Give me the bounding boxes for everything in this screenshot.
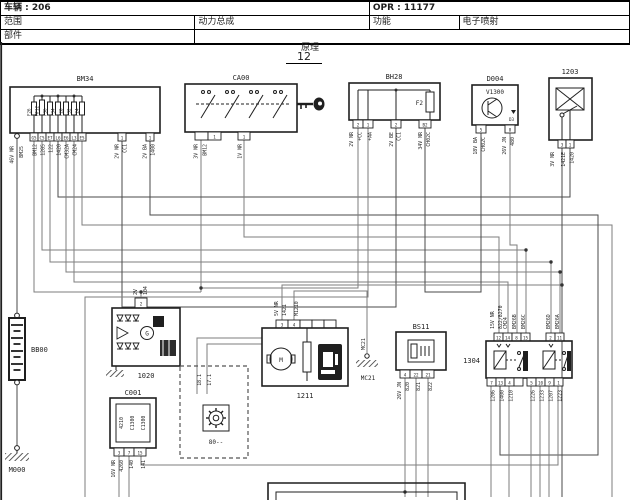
c001-pin: 15 xyxy=(137,451,143,456)
wire-label: BM26C xyxy=(521,314,527,329)
c001-label: C001 xyxy=(125,389,142,397)
wire-label: 1233 xyxy=(540,390,546,402)
wire-label: BM12 xyxy=(33,144,39,156)
wire-label: CH02C xyxy=(481,137,487,152)
r1304-bottom-wire-labels: 1206 1400 1210 1226 1233 1207 1223 xyxy=(491,390,564,402)
wire-label: BM26B xyxy=(512,314,518,329)
wire-label: 1421E xyxy=(561,152,567,167)
component-1304: 1304 15V NR 822/8270 CM24 BM26B BM26C BM… xyxy=(463,305,572,401)
alternator-diodes xyxy=(117,315,139,349)
component-bb00: BB00 xyxy=(9,313,48,385)
b-terminal-icon: B xyxy=(157,320,161,327)
bm34-pin: L6 xyxy=(55,136,61,141)
bm34-battery-terminal xyxy=(15,134,20,139)
diode-icon xyxy=(511,110,516,114)
bm34-fuse-label: F36 xyxy=(43,108,48,116)
wire-label: 1421 xyxy=(282,304,288,316)
bm34-fuse-label: F26 xyxy=(27,108,32,116)
bh28-pin: B2 xyxy=(422,123,428,128)
wire-label: 1400 xyxy=(500,390,506,402)
component-bs11: BS11 4 22 21 26V JN 820 821 822 xyxy=(396,323,446,400)
c001-inner-label: C1300 xyxy=(130,416,136,431)
wire-label: 2V NR xyxy=(349,132,355,147)
key-icon xyxy=(297,98,325,111)
r1304-pin: 10 xyxy=(538,381,544,386)
bm34-label: BM34 xyxy=(77,75,94,83)
r1304-top-pins: 12 14 8 15 2 11 xyxy=(494,333,564,341)
wire-label: 822 xyxy=(428,382,434,391)
wire-label: 2V BA xyxy=(143,144,149,159)
bm34-fuse-label: F24 xyxy=(75,108,80,116)
bh28-label: BH28 xyxy=(386,73,403,81)
bm34-fuse-label: F34 xyxy=(51,108,56,116)
wire-label: +CC xyxy=(358,132,364,141)
wire-label: 1226 xyxy=(531,390,537,402)
wire-label: 34V NR xyxy=(418,132,424,150)
component-1211: 5V NR 1421 M1210 3 4 M 1211 xyxy=(262,301,348,400)
wire-label: 1420 xyxy=(57,144,63,156)
ca00-label: CA00 xyxy=(233,74,250,82)
r1304-pin: 13 xyxy=(498,381,504,386)
wire-label: 1206 xyxy=(491,390,497,402)
bm34-wire-labels: 46V NR BM25 BM12 1285 122 1420 CM32A CM2… xyxy=(10,144,157,164)
wire-label: 3V NR xyxy=(194,144,200,159)
wire-label: BM26A xyxy=(555,314,561,329)
wire-label: 26V JN xyxy=(502,137,508,155)
m000-label: M000 xyxy=(9,466,26,474)
wire-label: 2V xyxy=(133,289,139,295)
wire-label: 3V NR xyxy=(550,152,556,167)
wire-label: 122 xyxy=(49,144,55,153)
r1304-pin: 11 xyxy=(557,336,563,341)
bm34-fuse-label: F32 xyxy=(67,108,72,116)
component-80-box: 18.1 17.1 80-- xyxy=(180,366,248,458)
box80-label: 80-- xyxy=(209,439,223,446)
wiring-diagram: BM34 F26 MF12 F36 F34 F2 xyxy=(0,0,630,500)
r1304-pin: 12 xyxy=(496,336,502,341)
bm34-pin: G5 xyxy=(31,136,37,141)
wire-label: 1285 xyxy=(41,144,47,156)
alternator-ground xyxy=(106,370,124,377)
wire-label: CM32A xyxy=(65,144,71,159)
wire-label: CM24 xyxy=(503,317,509,329)
d004-sub-label: V1300 xyxy=(486,89,504,96)
schematic-page: 车辆 : 206 OPR : 11177 范围 动力总成 功能 电子喷射 部件 … xyxy=(0,0,630,500)
wire-label: 1400 xyxy=(151,144,157,156)
component-c001: C001 4210 C1300 C1300 3 7 15 16V NR 4260… xyxy=(110,389,156,478)
wire-label: 18.1 xyxy=(197,374,203,386)
component-bh28: BH28 F2 2 1 2 B2 2V NR +CC +AA 2V BE CC1… xyxy=(349,73,440,150)
relay-1203-label: 1203 xyxy=(562,68,579,76)
ground-m000: M000 xyxy=(5,446,29,474)
relay-internals xyxy=(494,344,571,371)
wire-label: CC1 xyxy=(397,132,403,141)
wire-label: 46V NR xyxy=(10,146,16,164)
bs11-pin: 22 xyxy=(413,373,419,378)
bottom-partial-box xyxy=(268,483,465,500)
component-bm34: BM34 F26 MF12 F36 F34 F2 xyxy=(10,75,161,164)
wire-label: 4260 xyxy=(119,460,125,472)
wire-label: 1207 xyxy=(549,390,555,402)
wire-label: 480 xyxy=(510,137,516,146)
relay-1304-label: 1304 xyxy=(463,357,480,365)
wire-label: 141 xyxy=(141,460,147,469)
bm34-pin: E6 xyxy=(63,136,69,141)
bm34-fuse-label: MF12 xyxy=(35,105,40,116)
wire-label: 104 xyxy=(143,286,149,295)
component-ca00: CA00 1 1 xyxy=(185,74,325,159)
wire-label: BM26D xyxy=(546,314,552,329)
bm34-fuse-label: F28 xyxy=(59,108,64,116)
wire-label: 1210 xyxy=(509,390,515,402)
r1304-bottom-pins: 7 13 4 5 10 9 1 xyxy=(487,378,563,386)
wire-label: 16V NR xyxy=(111,460,117,478)
wire-label: 18V BA xyxy=(473,137,479,155)
wire-label: 1420 xyxy=(570,152,576,164)
regulator-icon xyxy=(160,340,176,356)
c001-inner-label: 4210 xyxy=(119,417,125,429)
wire-label: 1V NR xyxy=(238,144,244,159)
wire-label: CC1 xyxy=(123,144,129,153)
component-1020: 2 2V 104 G B 1020 xyxy=(106,286,180,380)
fuel-pump-icon xyxy=(318,344,342,380)
wire-label: MC21 xyxy=(361,338,367,350)
bm34-pin-row: G5 C5 E7 L6 E6 L3 E5 1 1 xyxy=(30,133,154,141)
bm34-pin: C5 xyxy=(39,136,45,141)
wire-label: 140 xyxy=(129,460,135,469)
wire-label: 2V BE xyxy=(389,132,395,147)
d004-label: D004 xyxy=(487,75,504,83)
wire-label: 1223 xyxy=(558,390,564,402)
wire-label: M1210 xyxy=(294,301,300,316)
bs11-label: BS11 xyxy=(413,323,430,331)
bm34-pin: E7 xyxy=(47,136,53,141)
mc21-label: MC21 xyxy=(361,375,376,382)
wire-label: 15V NR xyxy=(490,311,496,329)
bm34-fuses: F26 MF12 F36 F34 F28 F32 F24 xyxy=(27,96,85,133)
bh28-fuse-label: F2 xyxy=(416,100,424,107)
p1211-label: 1211 xyxy=(297,392,314,400)
r1304-pin: 15 xyxy=(523,336,529,341)
bs11-pin: 21 xyxy=(425,373,431,378)
gear-icon xyxy=(203,405,229,431)
wire-label: BM25 xyxy=(19,146,25,158)
bm34-pin: E5 xyxy=(79,136,85,141)
wire-label: 5V NR xyxy=(274,301,280,316)
wire-label: 2V NR xyxy=(115,144,121,159)
motor-icon: M xyxy=(279,357,283,364)
bb00-label: BB00 xyxy=(31,346,48,354)
wire-label: 821 xyxy=(416,382,422,391)
component-d004: D004 V1300 D3 5 8 18V BA CH02C 26V JN 48… xyxy=(472,75,518,155)
wire-label: CH02C xyxy=(426,132,432,147)
d004-diode-label: D3 xyxy=(509,117,515,122)
wire-label: 820 xyxy=(405,382,411,391)
r1304-pin: 14 xyxy=(505,336,511,341)
wire-network xyxy=(17,128,612,497)
c001-inner-label: C1300 xyxy=(141,416,147,431)
generator-icon: G xyxy=(145,331,149,338)
wire-label: +AA xyxy=(368,132,374,141)
wire-label: BM12 xyxy=(203,144,209,156)
wire-label: CM24 xyxy=(73,144,79,156)
wire-label: 26V JN xyxy=(397,382,403,400)
bm34-pin: L3 xyxy=(71,136,77,141)
alternator-1020-label: 1020 xyxy=(138,372,155,380)
wire-label: 17.1 xyxy=(207,374,213,386)
